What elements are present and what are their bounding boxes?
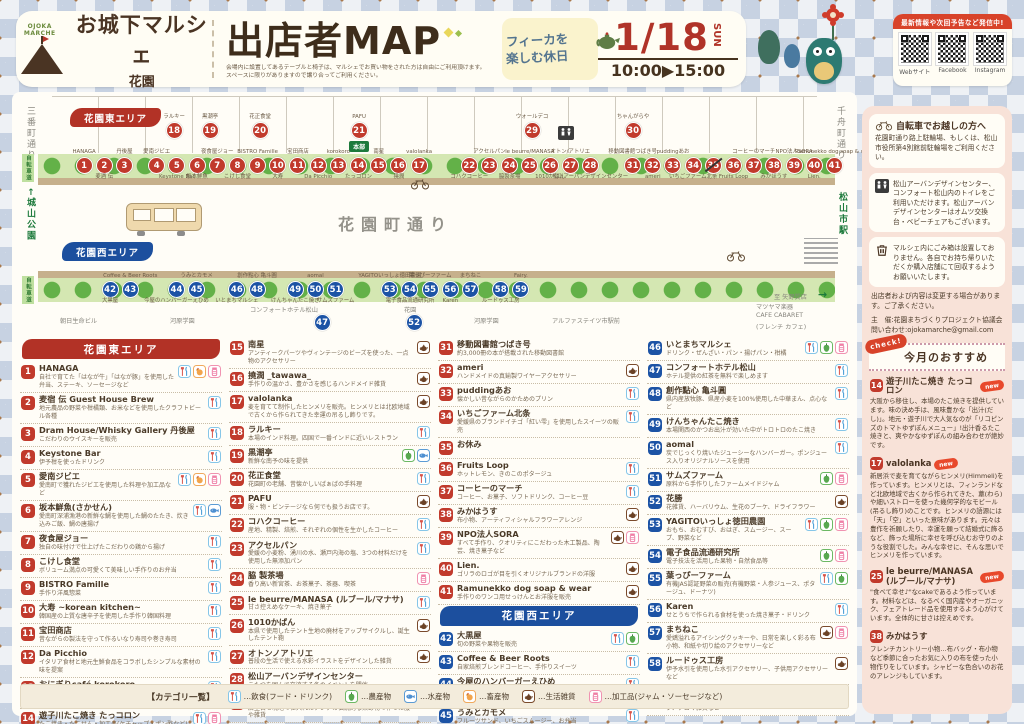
- map-stand-50: 50aomal: [307, 281, 324, 298]
- vendor-number: 21: [230, 495, 244, 509]
- map-stand-1: 1HANAGA: [76, 157, 93, 174]
- map-stand-number: 32: [644, 157, 661, 174]
- vendor-item: 27オトンノアトリエ普段の生活で使える水彩イラストをデザインした雑貨: [229, 646, 431, 669]
- new-badge: new: [980, 379, 1005, 392]
- map-stand-number: 48: [249, 281, 266, 298]
- vendor-name: 宝田商店: [39, 626, 204, 635]
- map-stand-15: 15南星: [370, 157, 387, 174]
- map-stand-number: 15: [370, 157, 387, 174]
- vendor-description: 服・物・ビンテージなら何でも扱うお店です。: [248, 504, 413, 512]
- map-stand-number: 26: [542, 157, 559, 174]
- vendor-category-icons: [626, 364, 639, 377]
- map-stand-label: 宝田商店: [287, 150, 309, 156]
- map-stand-number: 37: [745, 157, 762, 174]
- vendor-description: 原料から手作りしたファームメイドジャム: [666, 481, 816, 489]
- area-header-west: 花園西エリア: [440, 606, 638, 626]
- map-stand-label: valolanka: [406, 150, 432, 156]
- category-processed-icon: [208, 712, 221, 724]
- map-stand-number: 58: [492, 281, 509, 298]
- category-food-icon: [626, 410, 639, 423]
- category-agri-icon: [820, 549, 833, 562]
- vendor-name: 愛南ジビエ: [39, 472, 174, 481]
- category-food-icon: [228, 690, 241, 703]
- vendor-description: 愛媛県のブランドイチゴ「紅い雫」を使用したスイーツの販売: [457, 419, 622, 435]
- vendor-column: 15南星アンティークパーツやヴィンテージのビーズを使った、一点物のアクセサリー1…: [229, 338, 431, 682]
- tree-decoration: [784, 44, 800, 68]
- map-stand-label: ウォールデコ: [516, 115, 548, 121]
- vendor-number: 27: [230, 650, 244, 664]
- vendor-name: YAGITOいっしょ徳田農園: [666, 517, 801, 526]
- owl-icon: [806, 38, 842, 84]
- category-agri-icon: [820, 518, 833, 531]
- map-stand-number: 57: [462, 281, 479, 298]
- vendor-category-icons: [835, 387, 848, 400]
- map-building-label: (フレンチ カフェ): [756, 322, 806, 331]
- map-stand-number: 17: [411, 157, 428, 174]
- legend-item-goods: …生活雑貨: [522, 690, 576, 703]
- teapot-icon: [592, 29, 622, 51]
- category-goods-icon: [417, 495, 430, 508]
- map-stand-56: 56Karen: [442, 281, 459, 298]
- featured-vendor-text: 大阪から移住し、本場のたこ焼きを提供しています。味の決め手は、風味豊かな「出汁(…: [870, 397, 1004, 450]
- vendor-name: HANAGA: [39, 364, 174, 373]
- map-stand-label: Coffee & Beer Roots: [103, 274, 157, 280]
- map-stand-10: 10大寿: [269, 157, 286, 174]
- category-processed-icon: [589, 690, 602, 703]
- vendor-description: ゴリラのロゴが目を引くオリジナルブランドの洋服: [457, 571, 622, 579]
- vendor-category-icons: [208, 581, 221, 594]
- vendor-category-icons: [820, 572, 848, 585]
- category-goods-icon: [417, 372, 430, 385]
- vendor-column: 31移動図書館つばき号約3,000冊の本が搭載された移動図書館32ameriハン…: [438, 338, 640, 682]
- map-stand-number: 45: [188, 281, 205, 298]
- vendor-name: 松山アーバンデザインセンター: [248, 672, 426, 681]
- vendor-number: 17: [230, 395, 244, 409]
- vendor-category-icons: [626, 655, 639, 668]
- vendor-number: 4: [21, 450, 35, 464]
- vendor-category-icons: [208, 627, 221, 640]
- vendor-description: 有機JAS認証野菜の販売(有機野菜・人参ジュース、ポタージュ、ドーナツ): [666, 581, 816, 597]
- map-stand-label: コーヒーのマーチ: [732, 150, 775, 156]
- vendor-item: 24脇 製茶場香り高い新宮茶、お茶菓子、茶器、喫茶: [229, 569, 431, 592]
- sns-item: Webサイト: [899, 33, 931, 76]
- vendor-category-icons: [805, 341, 848, 354]
- vendor-name: 坂本鮮魚(さかせん): [39, 503, 189, 512]
- map-stand-number: 9: [249, 157, 266, 174]
- vendor-description: せとうちで作られる食材を使った焼き菓子・ドリンク: [666, 612, 831, 620]
- qr-code: [974, 33, 1006, 65]
- vendor-category-icons: [417, 395, 430, 408]
- vendor-item: 57まちねこ愛嬌溢れるアイシングクッキーや、日常を楽しく彩る布小物、和紙や切り絵…: [647, 623, 849, 654]
- map-stand-label: みかほうす: [760, 175, 787, 181]
- category-food-icon: [626, 485, 639, 498]
- map-stand-number: 14: [350, 157, 367, 174]
- map-stand-label: puddingあお: [657, 150, 690, 156]
- map-stand-label: 南星: [373, 150, 384, 156]
- vendor-description: 自家焙煎ブレンドコーヒー、手作りスイーツ: [457, 664, 622, 672]
- map-stand-label: 撓潤: [394, 175, 405, 181]
- map-stand-label: コハクコーヒー: [450, 175, 488, 181]
- vendor-name: サムズファーム: [666, 471, 816, 480]
- category-food-icon: [835, 387, 848, 400]
- featured-vendor: 14遊子川たこ焼き たっコロンnew大阪から移住し、本場のたこ焼きを提供していま…: [870, 377, 1004, 450]
- vendor-name: 移動図書館つばき号: [457, 340, 635, 349]
- road-label-left: 三番町通り: [24, 106, 37, 161]
- vendor-category-icons: [626, 387, 639, 400]
- vendor-category-icons: [208, 604, 221, 617]
- map-stand-46: 46いとまちマルシェ: [228, 281, 245, 298]
- vendor-item: 54電子食品流通研究所電子技法を活用した果物・自然食品等: [647, 546, 849, 569]
- legend-label: …畜産物: [479, 691, 509, 702]
- vendor-name: Keystone Bar: [39, 449, 204, 458]
- vendor-description: ドリンク・ぜんざい・パン・揚げパン・柑橘: [666, 350, 801, 358]
- vendor-category-icons: [626, 562, 639, 575]
- map-stand-40: 40Lien.: [806, 157, 823, 174]
- vendor-description: ボリューム満点の可愛くて美味しい手作りのお弁当: [39, 567, 204, 575]
- map-stand-number: 35: [705, 157, 722, 174]
- map-stand-5: 5Keystone Bar: [168, 157, 185, 174]
- vendor-category-icons: [626, 462, 639, 475]
- vendor-name: 撓潤 _tawawa_: [248, 371, 413, 380]
- vendor-item: 40Lien.ゴリラのロゴが目を引くオリジナルブランドの洋服: [438, 559, 640, 582]
- vendor-number: 56: [648, 603, 662, 617]
- category-goods-icon: [626, 364, 639, 377]
- main-panel: 花園町通り 花園東エリア 花園西エリア 三番町通り ←城山公園 千舟町通り 松山…: [12, 92, 857, 716]
- category-processed-icon: [417, 572, 430, 585]
- map-stand-label: le beurre/MANASA: [505, 150, 554, 156]
- vendor-description: アンティークパーツやヴィンテージのビーズを使った、一点物のアクセサリー: [248, 350, 413, 366]
- vendor-name: 黒潮亭: [248, 448, 398, 457]
- vendor-description: 手作りのワンコ用せっけんとお洋服を販売: [457, 594, 622, 602]
- map-building-label: 至 矢野質店: [774, 292, 807, 301]
- map-stand-21: 21PAFU本部: [351, 122, 368, 139]
- vendor-category-icons: [417, 572, 430, 585]
- vendor-name: 南星: [248, 340, 413, 349]
- vendor-category-icons: [417, 650, 430, 663]
- map-stand-48: 48創作點心 亀斗圓: [249, 281, 266, 298]
- vendor-category-icons: [417, 372, 430, 385]
- category-processed-icon: [835, 626, 848, 639]
- vendor-description: 花雑貨、ハーバリウム、生花のブーケ、ドライフラワー: [666, 504, 831, 512]
- vendor-category-icons: [208, 650, 221, 663]
- vendor-category-icons: [626, 709, 639, 722]
- vendor-item: 25le beurre/MANASA (ルブール/マナサ)甘さ控えめなケーキ、焼…: [229, 592, 431, 615]
- vendor-item: 4Keystone Bar伊予柑を使ったドリンク: [20, 447, 222, 470]
- vendor-category-icons: [193, 504, 221, 517]
- tree-decoration: [758, 30, 780, 64]
- logo-castle-icon: OJOKA MARCHE: [16, 24, 63, 74]
- vendor-description: 県内産放牧豚、県産小麦を100%使用した中華まん、点心など: [666, 396, 831, 412]
- category-food-icon: [835, 418, 848, 431]
- street: 花園町通り: [38, 185, 835, 271]
- category-agri-icon: [345, 690, 358, 703]
- map-stand-30: 30ちゃんがらや: [625, 122, 642, 139]
- map-stand-39: 39NPO法人SORA: [786, 157, 803, 174]
- map-building-label: CAFE CABARET: [756, 312, 803, 319]
- vendor-item: 48創作點心 亀斗圓県内産放牧豚、県産小麦を100%使用した中華まん、点心など: [647, 384, 849, 415]
- vendor-item: 9BISTRO Famille手作り洋風惣菜: [20, 578, 222, 601]
- organizer-info: 主 催:花園まちづくりプロジェクト協議会 問い合わせ:ojokamarche@g…: [871, 316, 1003, 336]
- vendor-name: コンフォートホテル松山: [666, 363, 831, 372]
- category-food-icon: [208, 558, 221, 571]
- legend-title: 【カテゴリ一覧】: [147, 691, 215, 703]
- map-area-badge-east: 花園東エリア: [70, 108, 161, 127]
- map-building-label: マツヤマ楽器: [756, 302, 793, 311]
- category-food-icon: [208, 427, 221, 440]
- vendor-category-icons: [835, 418, 848, 431]
- vendor-description: 独自の味付けで仕上げたこだわりの鶏から揚げ: [39, 544, 204, 552]
- sparkle-icon: [444, 27, 454, 37]
- featured-vendor-text: "食べて幸せ♪"なcakeであるよう作っています。材料などは、なるべく国内産やオ…: [870, 588, 1004, 623]
- category-fish-icon: [417, 449, 430, 462]
- event-logo: OJOKA MARCHE お城下マルシェ 花園: [16, 20, 214, 78]
- map-stand-number: 49: [287, 281, 304, 298]
- map-stand-33: 33puddingあお: [664, 157, 681, 174]
- vendor-description: 新鮮な南予の味を提供: [248, 458, 398, 466]
- vendor-number: 33: [439, 387, 453, 401]
- map-stand-number: 33: [664, 157, 681, 174]
- map-stand-number: 53: [381, 281, 398, 298]
- vendor-item: 17valolanka麦を育てて制作したヒンメリを販売。ヒンメリとは北欧地域で古…: [229, 392, 431, 423]
- category-food-icon: [208, 396, 221, 409]
- category-food-icon: [193, 712, 206, 724]
- category-goods-icon: [626, 562, 639, 575]
- vendor-number: 55: [648, 572, 662, 586]
- map-stand-55: 55葉っぴーファーム: [422, 281, 439, 298]
- vendor-number: 16: [230, 372, 244, 386]
- map-building-label: 朝日生命ビル: [60, 316, 97, 325]
- map-stand-number: 31: [624, 157, 641, 174]
- map-stand-49: 49けんちゃんたこ焼き: [287, 281, 304, 298]
- map-stand-number: 59: [512, 281, 529, 298]
- legend-item-livestock: …畜産物: [463, 690, 509, 703]
- vendor-category-icons: [835, 657, 848, 670]
- vendor-category-icons: [178, 365, 221, 378]
- map-stand-number: 8: [229, 157, 246, 174]
- featured-vendor: 17valolankanew新居浜で麦を育てながらヒンメリ(Himmeli)を作…: [870, 457, 1004, 560]
- featured-vendor-number: 14: [870, 379, 883, 392]
- category-goods-icon: [417, 650, 430, 663]
- bicycle-info-text: 花園町通り路上駐輪場、もしくは、松山市役所第4別館前駐輪場をご利用ください。: [875, 134, 999, 163]
- vendor-category-icons: [402, 449, 430, 462]
- vendor-item: 22コハクコーヒー産地、精製、焙煎、それぞれの個性を生かしたコーヒー: [229, 515, 431, 538]
- map-stand-label: 脇製茶場: [499, 175, 521, 181]
- vendor-item: 37コーヒーのマーチコーヒー、お菓子、ソフトドリンク、コーヒー豆: [438, 482, 640, 505]
- vendor-item: 38みかはうす布小物、アーティフィシャルフラワーアレンジ: [438, 505, 640, 528]
- header-notes: 会場内に設置してあるテーブルと椅子は、マルシェでお買い物をされた方は自由にご利用…: [226, 64, 494, 81]
- category-processed-icon: [835, 341, 848, 354]
- category-goods-icon: [417, 341, 430, 354]
- category-fish-icon: [208, 504, 221, 517]
- map-stand-47: 47: [314, 314, 331, 331]
- map-stand-label: BISTRO Famille: [237, 150, 278, 156]
- contact-line: 問い合わせ:ojokamarche@gmail.com: [871, 326, 1003, 336]
- vendor-number: 54: [648, 549, 662, 563]
- legend-item-processed: …加工品(ジャム・ソーセージなど): [589, 690, 723, 703]
- vendor-description: 伊予柑を使ったドリンク: [39, 459, 204, 467]
- vendor-number: 15: [230, 341, 244, 355]
- vendor-number: 32: [439, 364, 453, 378]
- category-goods-icon: [835, 495, 848, 508]
- category-food-icon: [805, 518, 818, 531]
- category-goods-icon: [626, 585, 639, 598]
- vendor-description: おもち、おむすび、おはぎ、スムージー、スープ、野菜など: [666, 527, 801, 543]
- vendor-category-icons: [417, 619, 430, 632]
- vendor-number: 10: [21, 604, 35, 618]
- map-stand-label: 丹後屋: [116, 150, 132, 156]
- map-stand-number: 12: [310, 157, 327, 174]
- vendor-name: いちごファーム北条: [457, 409, 622, 418]
- map-stand-13: 13korokoro: [330, 157, 347, 174]
- category-food-icon: [835, 603, 848, 616]
- vendor-name: Fruits Loop: [457, 461, 622, 470]
- map-stand-9: 9BISTRO Famille: [249, 157, 266, 174]
- vendor-list: 花園東エリア1HANAGA自社で育てた「はなが牛」「はなが豚」を使用した弁当、ス…: [20, 338, 849, 682]
- category-livestock-icon: [193, 473, 206, 486]
- category-goods-icon: [417, 619, 430, 632]
- map-stand-number: 16: [390, 157, 407, 174]
- legend-label: …生活雑貨: [538, 691, 576, 702]
- toilet-icon: [875, 179, 889, 193]
- map-building-label: コンフォートホテル松山: [250, 305, 318, 314]
- map-stand-36: 36Fruits Loop: [725, 157, 742, 174]
- vendor-category-icons: [835, 441, 848, 454]
- vendor-number: 2: [21, 396, 35, 410]
- vendor-description: 韓国産の上質な唐辛子を使用した手作り韓国料理: [39, 613, 204, 621]
- map-stand-32: 32ameri: [644, 157, 661, 174]
- vendor-description: 愛南町深浦漁港の新鮮な鯛を使用した鯛のたたき、炊き込みご飯、鯛の唐揚げ: [39, 513, 189, 529]
- vendor-description: こだわりのウイスキーを販売: [39, 436, 204, 444]
- map-stand-label: いちごファーム北条: [669, 175, 717, 181]
- category-agri-icon: [402, 449, 415, 462]
- vendor-item: 33puddingあお懐かしい昔ながらのかためのプリン: [438, 384, 640, 407]
- map-stand-number: 42: [102, 281, 119, 298]
- vendor-name: コーヒーのマーチ: [457, 484, 622, 493]
- vendor-description: 炭でじっくり焼いたジューシーなハンバーガー。ポンジュース入りオリジナルソースを使…: [666, 450, 831, 466]
- map-stand-28: 28松山アーバンデザインセンター: [582, 157, 599, 174]
- category-food-icon: [835, 441, 848, 454]
- featured-vendor: 25le beurre/MANASA (ルブール/マナサ)new"食べて幸せ♪"…: [870, 567, 1004, 623]
- vendor-item: 35お休み: [438, 438, 640, 458]
- toilet-info-card: 松山アーバンデザインセンター、コンフォート松山内のトイレをご利用いただけます。松…: [869, 173, 1005, 233]
- toilet-icon: [558, 126, 574, 140]
- map-stand-number: 21: [351, 122, 368, 139]
- vendor-category-icons: [178, 473, 221, 486]
- change-notice: 出店者および内容は変更する場合があります。ご了承ください。: [871, 292, 1003, 312]
- vendor-item: 20花正食堂花園町の老舗、昔懐かしいばぁばの手料理: [229, 469, 431, 492]
- vendor-name: PAFU: [248, 494, 413, 503]
- category-processed-icon: [835, 549, 848, 562]
- vendor-description: 麦を育てて制作したヒンメリを販売。ヒンメリとは北欧地域で古くから作られてきた幸運…: [248, 404, 413, 420]
- vendor-number: 23: [230, 542, 244, 556]
- map-stand-24: 24脇製茶場: [501, 157, 518, 174]
- map-stand-label: korokoro: [327, 150, 350, 156]
- map-stand-number: 25: [521, 157, 538, 174]
- category-food-icon: [820, 572, 833, 585]
- map-stand-35: 35: [705, 157, 722, 174]
- vendor-item: 56Karenせとうちで作られる食材を使った焼き菓子・ドリンク: [647, 600, 849, 623]
- vendor-number: 46: [648, 341, 662, 355]
- map-stand-25: 25le beurre/MANASA: [521, 157, 538, 174]
- bicycle-icon: [410, 178, 430, 190]
- vendor-category-icons: [417, 495, 430, 508]
- category-goods-icon: [820, 626, 833, 639]
- map-stand-number: 47: [314, 314, 331, 331]
- vendor-category-icons: [417, 596, 430, 609]
- map-stand-label: 麦酒 伝: [95, 175, 113, 181]
- map-stand-number: 40: [806, 157, 823, 174]
- vendor-name: le beurre/MANASA (ルブール/マナサ): [248, 595, 413, 604]
- bicycle-icon: [726, 250, 746, 262]
- map-stand-29: 29ウォールデコ: [524, 122, 541, 139]
- recommend-banner: check! 今月のおすすめ: [869, 343, 1005, 371]
- vendor-item: 53YAGITOいっしょ徳田農園おもち、おむすび、おはぎ、スムージー、スープ、野…: [647, 515, 849, 546]
- vendor-name: BISTRO Famille: [39, 580, 204, 589]
- vendor-item: 1HANAGA自社で育てた「はなが牛」「はなが豚」を使用した弁当、ステーキ、ソー…: [20, 362, 222, 393]
- map-stand-number: 34: [685, 157, 702, 174]
- map-stand-42: 42大黒屋: [102, 281, 119, 298]
- vendor-item: 11宝田商店昔ながらの製法を守って作るいなり寿司や巻き寿司: [20, 624, 222, 647]
- map-stand-number: 28: [582, 157, 599, 174]
- bikeway-label: 自転車道: [22, 154, 34, 182]
- vendor-item: 23アクセルパン愛媛の小麦粉、湧川の水、瀬戸内海の塩、3つの材料だけを使用した無…: [229, 538, 431, 569]
- category-agri-icon: [820, 341, 833, 354]
- category-agri-icon: [835, 572, 848, 585]
- category-food-icon: [611, 632, 624, 645]
- vendor-number: 9: [21, 581, 35, 595]
- vendor-category-icons: [626, 508, 639, 521]
- map-stand-number: 52: [406, 314, 423, 331]
- vendor-description: フルーツサンド、いちごスムージー、お弁当: [457, 718, 622, 724]
- category-livestock-icon: [193, 365, 206, 378]
- vendor-number: 24: [230, 572, 244, 586]
- sparkle-icon: [455, 30, 462, 37]
- vendor-item: 261010かばん本県で使用したテント生地の廃材をアップサイクルし、誕生したテン…: [229, 615, 431, 646]
- map-stand-19: 19黒潮亭: [202, 122, 219, 139]
- map-stand-label: まちねこ: [460, 274, 482, 280]
- map-stand-label: Fairy.: [514, 274, 528, 280]
- vendor-description: 本県で使用したテント生地の廃材をアップサイクルし、誕生したテント鞄: [248, 628, 413, 644]
- trash-icon: [875, 243, 889, 257]
- vendor-item: 43Coffee & Beer Roots自家焙煎ブレンドコーヒー、手作りスイー…: [438, 652, 640, 675]
- map-stand-number: 4: [148, 157, 165, 174]
- vendor-number: 3: [21, 427, 35, 441]
- vendor-description: 香り高い新宮茶、お茶菓子、茶器、喫茶: [248, 581, 413, 589]
- vendor-name: Da Picchio: [39, 649, 204, 658]
- map-stand-number: 43: [122, 281, 139, 298]
- category-food-icon: [178, 365, 191, 378]
- category-processed-icon: [208, 365, 221, 378]
- vendor-item: 41Ramunekko dog soap & wear手作りのワンコ用せっけんと…: [438, 582, 640, 605]
- sns-label: Facebook: [936, 67, 968, 74]
- vendor-category-icons: [208, 450, 221, 463]
- category-food-icon: [208, 650, 221, 663]
- vendor-description: 本場関西のかつお出汁が効いた中がトロトロのたこ焼き: [666, 427, 831, 435]
- map-stand-26: 261010かばん: [542, 157, 559, 174]
- vendor-number: 6: [21, 504, 35, 518]
- vendor-number: 31: [439, 341, 453, 355]
- bikeway-label: 自転車道: [22, 276, 34, 304]
- map-stand-27: 27オトン/アトリエ: [562, 157, 579, 174]
- vendor-description: 電子技法を活用した果物・自然食品等: [666, 558, 816, 566]
- vendor-description: 愛媛の小麦粉、湧川の水、瀬戸内海の塩、3つの材料だけを使用した無添加パン: [248, 550, 413, 566]
- map-stand-31: 31移動図書館つばき号: [624, 157, 641, 174]
- map-stand-label: 創作點心 亀斗圓: [237, 274, 276, 280]
- event-time: 10:00▶15:00: [598, 58, 738, 80]
- vendor-number: 20: [230, 472, 244, 486]
- vendor-description: ホットレモン、きのこのポタージュ: [457, 471, 622, 479]
- vendor-name: 創作點心 亀斗圓: [666, 386, 831, 395]
